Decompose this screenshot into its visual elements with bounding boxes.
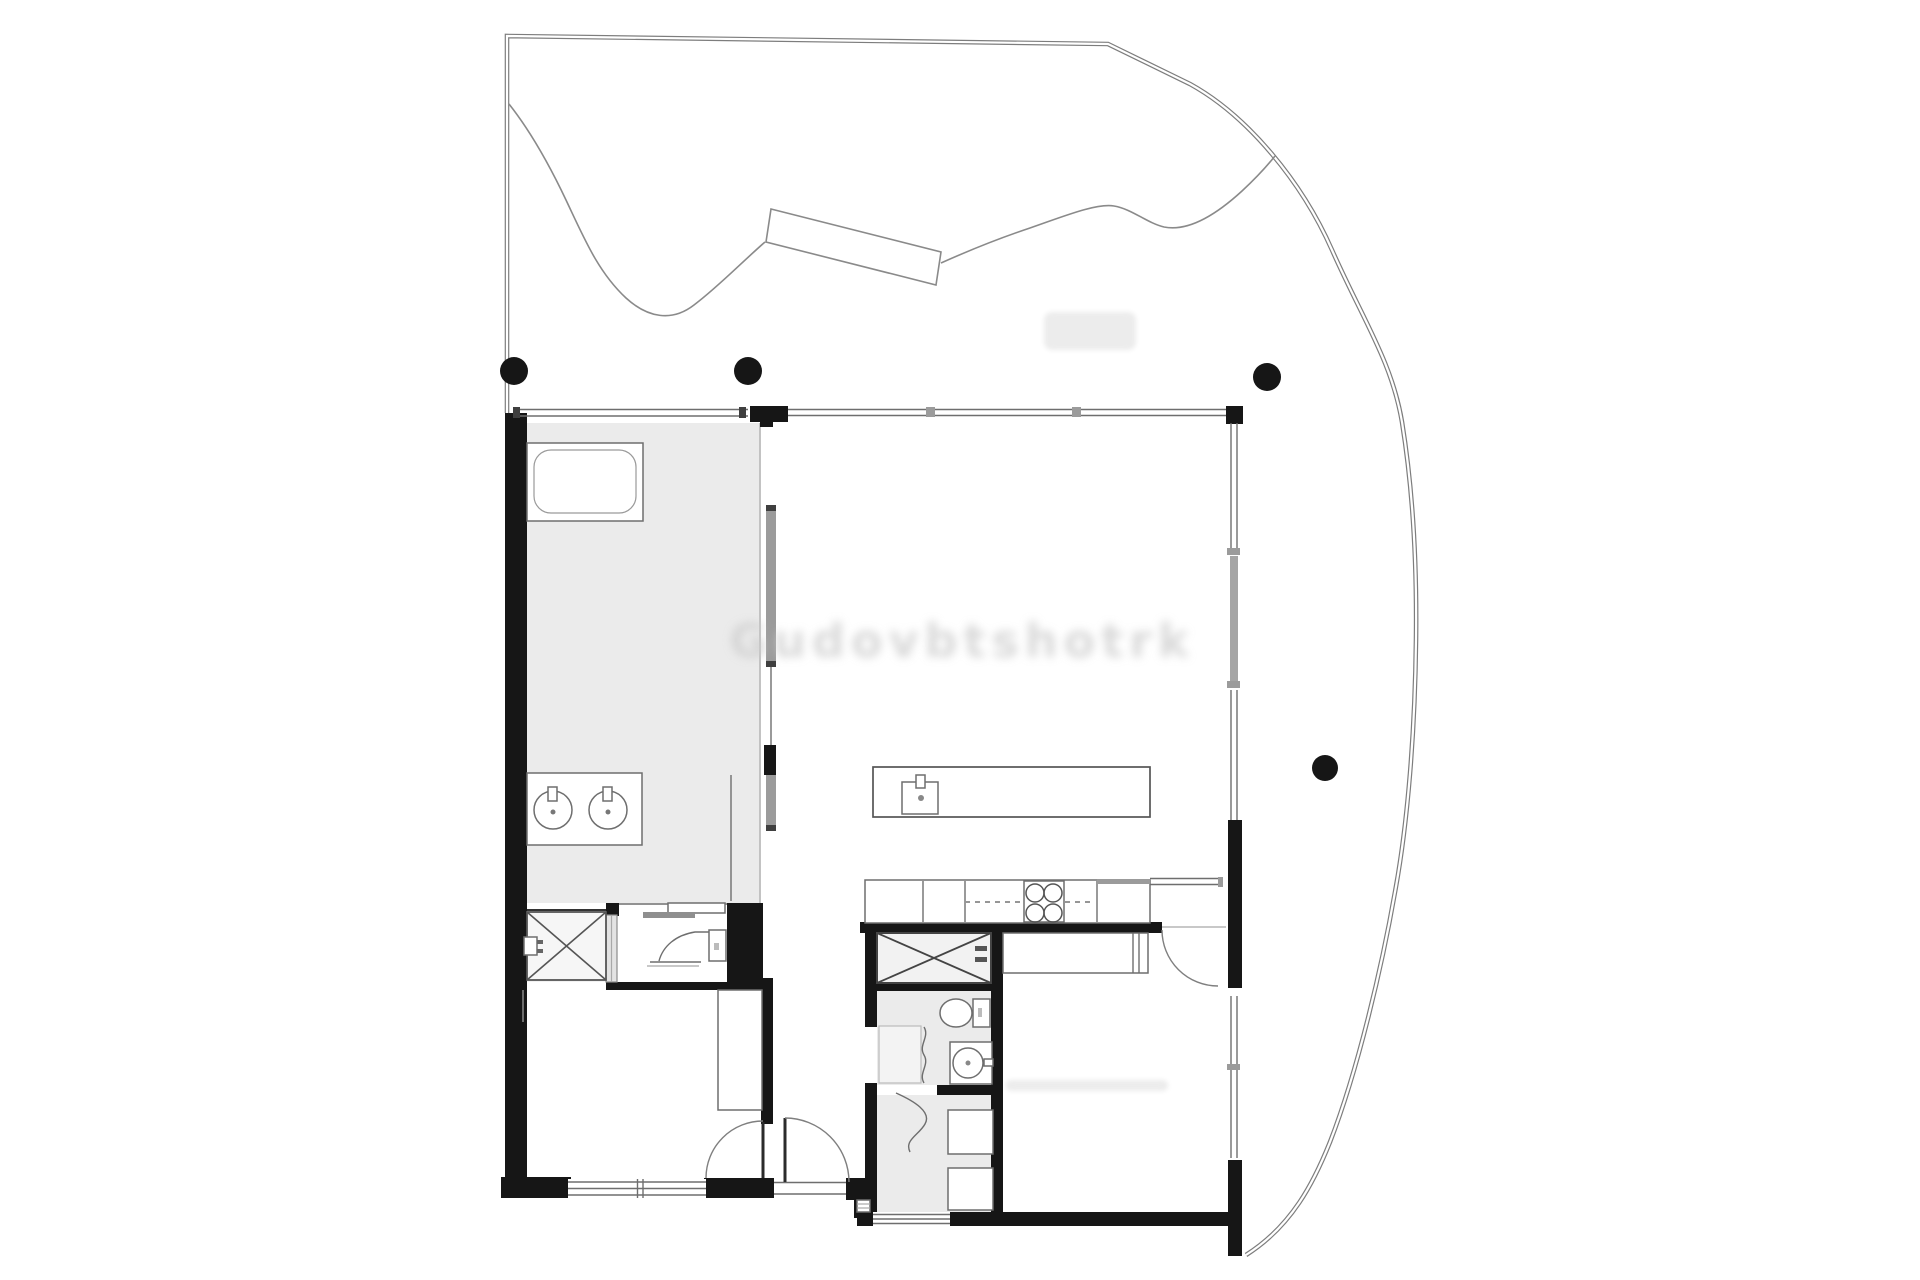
ghost-furniture-artifact [1044,312,1136,350]
wall-bracket-prong [537,949,543,953]
wall-bottom-left-corner [501,1177,571,1198]
dryer [948,1168,993,1210]
wall-bath2-bottom [937,1085,991,1095]
window-mullion [1072,407,1081,417]
window-end-cap [739,407,746,418]
panel-cap [766,505,776,511]
toilet2-button [978,1008,982,1017]
vanity2-drain-dot [966,1061,971,1066]
basin-drain-dot [551,810,556,815]
wall-left [505,413,527,1198]
island-drain-dot [918,795,924,801]
garden-bed-line-left [509,104,765,316]
column-dot [734,357,762,385]
wall-ensuite-left-a [865,922,877,1027]
wardrobe2-handle [975,946,987,951]
wall-top-bath-pier-tab [760,422,773,427]
wardrobe-2 [877,933,991,983]
wall-bracket-prong [537,940,543,944]
laundry-vent-band [873,1212,950,1226]
garden-bed-line-right [941,156,1275,263]
entry-step-fixture [857,1200,870,1212]
bedroom1-robe [718,990,762,1110]
washer [948,1110,993,1154]
toilet-button [714,943,719,950]
panel-cap [766,825,776,831]
wall-top-bath-pier [750,406,788,422]
island-tap [916,775,925,788]
wall-se-corner-pier [1228,1160,1242,1256]
window-end-cap [513,407,520,418]
toilet2-bowl [940,999,972,1027]
wardrobe2-handle [975,957,987,962]
wall-ne-corner [1226,406,1243,424]
bedroom2-door-swing [1162,930,1218,986]
shower2-tray [879,1026,921,1083]
services-shaft [727,903,763,988]
bedroom2-robe [1003,933,1148,973]
bedroom-2 [1003,927,1226,986]
watermark-illegible: Gudovbtshotrk [730,614,1195,668]
window-joint [1227,548,1240,555]
wall-right-mid-pier [1228,820,1242,988]
planter-steps [766,209,941,285]
wall-wc-pier [606,903,619,916]
toilet-bowl [650,932,709,962]
bedroom1-door-swing [706,1121,763,1178]
bath-door-panel [766,775,776,830]
right-wall-sliding-panel [1230,556,1238,683]
wall-wardrobe2-bottom [877,983,991,991]
vanity2-tap [984,1059,993,1066]
window-joint [1227,1064,1240,1070]
wall-bracket-fixture [524,937,537,955]
wc-room [619,903,727,966]
window-joint [1227,681,1240,688]
counter-gray-edge [1097,879,1150,884]
column-dot [500,357,528,385]
kitchen [865,767,1150,923]
basin-drain-dot [606,810,611,815]
window-mullion [926,407,935,417]
smudge-artifact [1006,1080,1168,1091]
tap-icon [548,787,557,801]
wall-bottom-bed1 [704,1178,774,1198]
wc-shelf [668,903,725,913]
wardrobe-main [524,910,606,980]
bathtub-basin [534,450,636,513]
window-bed1-bottom [568,1179,706,1198]
entry-door-swing [785,1118,849,1182]
kitchen-return-counter-line [1150,877,1223,887]
tap-icon [603,787,612,801]
floor-plan-page: Gudovbtshotrk [0,0,1920,1280]
column-dot [1312,755,1338,781]
wc-slider-bar [643,912,695,918]
column-dot [1253,363,1281,391]
bedroom-1 [523,990,763,1178]
floor-plan-canvas: Gudovbtshotrk [0,0,1920,1280]
wall-bath-east-pier [764,745,776,775]
wall-bed1-east [761,978,773,1124]
